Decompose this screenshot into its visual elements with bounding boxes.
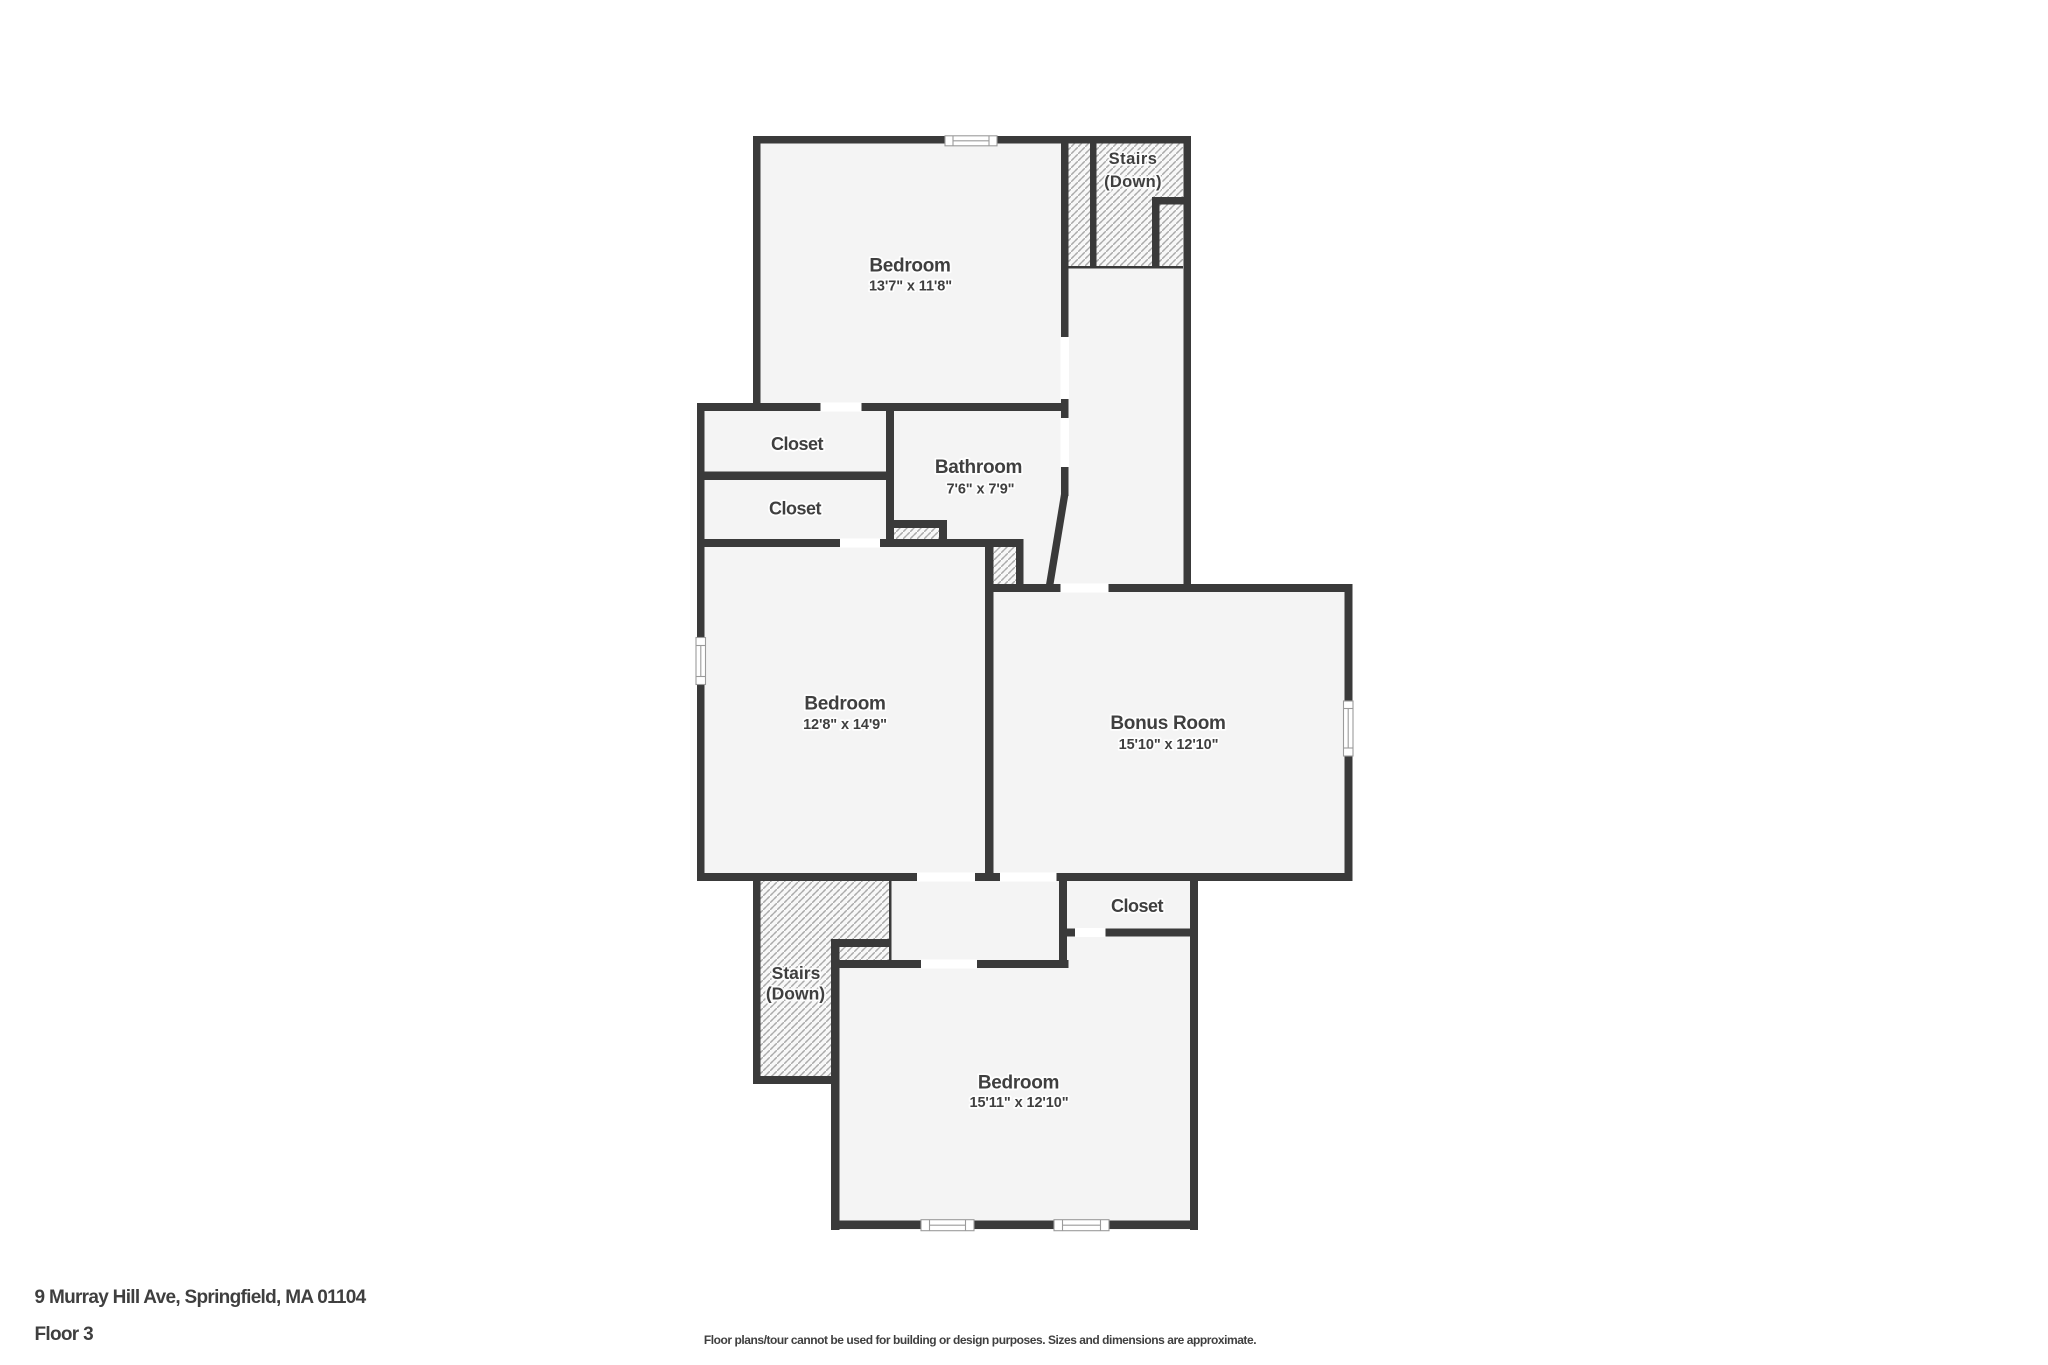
- svg-text:13'7" x 11'8": 13'7" x 11'8": [869, 279, 952, 295]
- svg-text:Closet: Closet: [1111, 896, 1164, 916]
- svg-text:Bedroom: Bedroom: [978, 1073, 1059, 1094]
- svg-text:15'10" x 12'10": 15'10" x 12'10": [1119, 737, 1219, 753]
- svg-text:Closet: Closet: [771, 434, 824, 454]
- svg-text:Bedroom: Bedroom: [804, 694, 885, 715]
- svg-text:Bedroom: Bedroom: [869, 256, 950, 277]
- svg-text:(Down): (Down): [766, 984, 825, 1004]
- svg-text:15'11" x 12'10": 15'11" x 12'10": [970, 1095, 1069, 1111]
- svg-text:12'8" x 14'9": 12'8" x 14'9": [803, 717, 887, 733]
- svg-text:Floor plans/tour cannot be use: Floor plans/tour cannot be used for buil…: [704, 1333, 1256, 1347]
- svg-text:Floor 3: Floor 3: [35, 1324, 94, 1345]
- svg-text:Bathroom: Bathroom: [935, 457, 1022, 478]
- svg-text:7'6" x 7'9": 7'6" x 7'9": [947, 482, 1015, 498]
- svg-text:Bonus Room: Bonus Room: [1110, 713, 1225, 734]
- svg-text:Closet: Closet: [769, 499, 822, 519]
- svg-text:Stairs: Stairs: [772, 963, 821, 983]
- svg-text:(Down): (Down): [1104, 173, 1162, 191]
- svg-text:9 Murray Hill Ave, Springfield: 9 Murray Hill Ave, Springfield, MA 01104: [35, 1287, 367, 1308]
- svg-text:Stairs: Stairs: [1109, 150, 1158, 168]
